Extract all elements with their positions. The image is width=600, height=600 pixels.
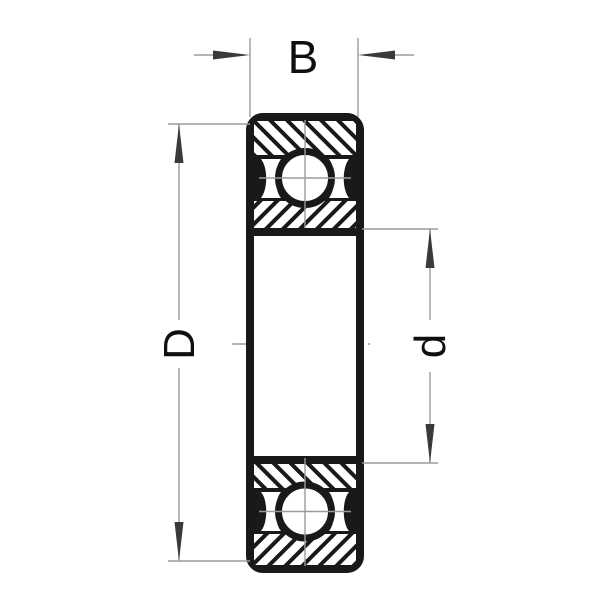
- dimension-D: D: [155, 124, 250, 561]
- top-ring-section: [250, 120, 360, 232]
- label-outer-diameter-D: D: [155, 328, 204, 360]
- bearing-drawing-canvas: B D d: [0, 0, 600, 600]
- arrow-D-up-icon: [175, 124, 184, 163]
- bearing-diagram: B D d: [0, 0, 600, 600]
- arrow-B-left-icon: [213, 51, 250, 60]
- dimension-B: B: [194, 31, 414, 117]
- label-bore-diameter-d: d: [406, 334, 455, 358]
- bottom-ring-section: [250, 458, 360, 566]
- dimension-d: d: [362, 229, 455, 463]
- arrow-d-up-icon: [426, 229, 435, 268]
- arrow-D-down-icon: [175, 522, 184, 561]
- arrow-B-right-icon: [358, 51, 395, 60]
- arrow-d-down-icon: [426, 424, 435, 463]
- label-width-B: B: [288, 31, 319, 83]
